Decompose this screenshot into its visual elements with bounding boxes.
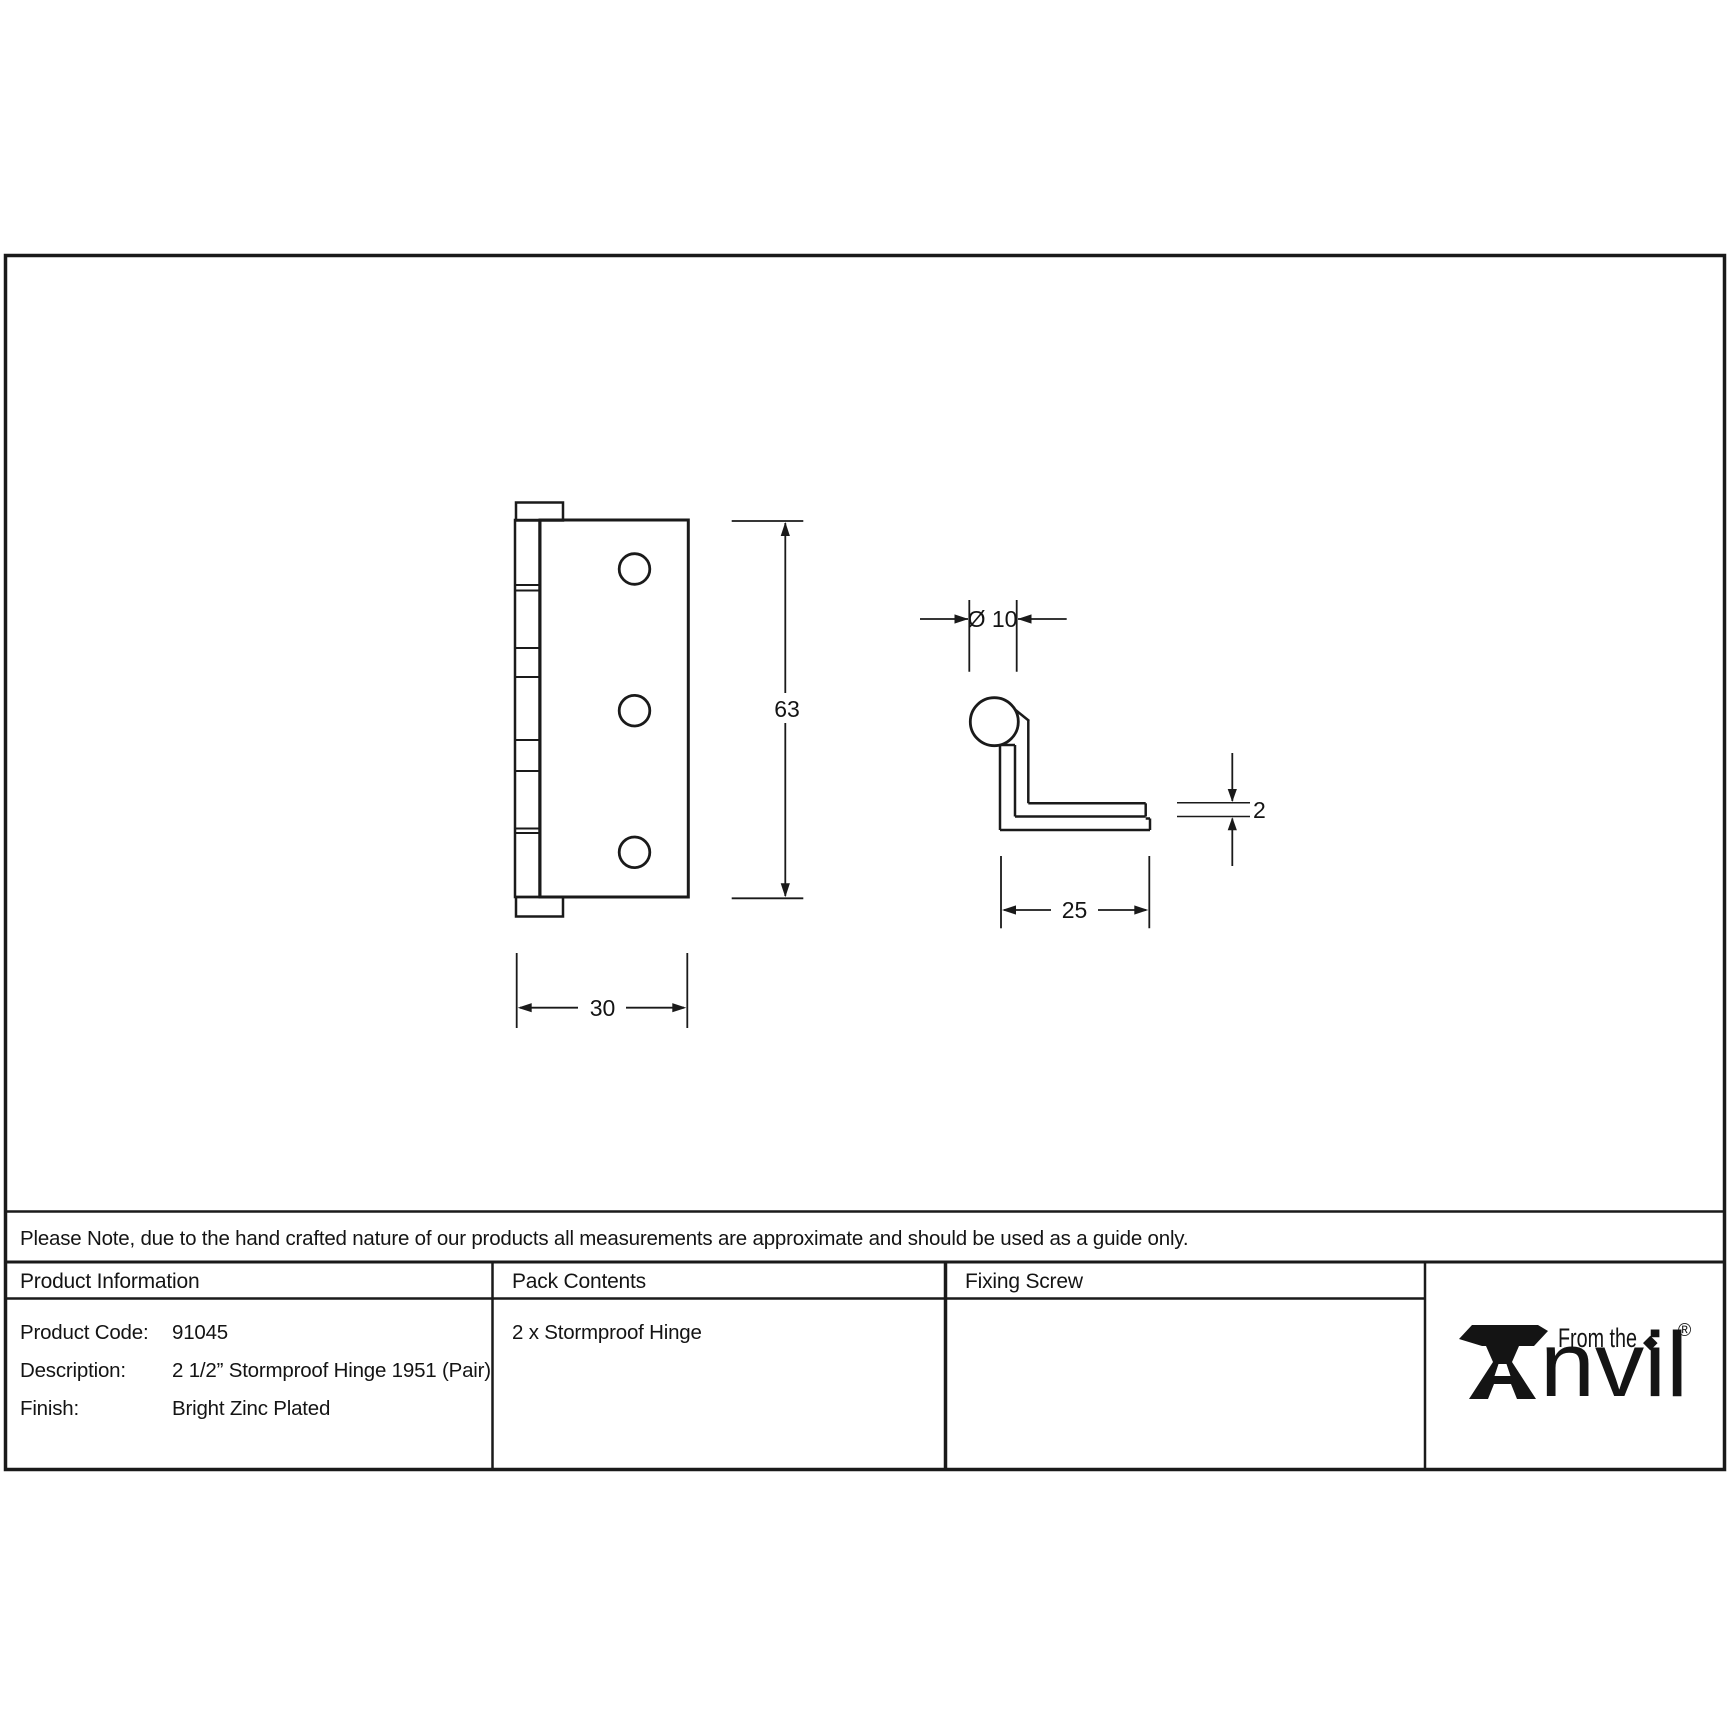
dimension-height-63: 63 xyxy=(732,521,804,898)
dimension-diameter-10: Ø 10 xyxy=(920,600,1067,672)
description-label: Description: xyxy=(20,1359,170,1383)
sheet-frame xyxy=(4,256,1725,1470)
description-value: 2 1/2” Stormproof Hinge 1951 (Pair) xyxy=(172,1359,491,1383)
product-code-value: 91045 xyxy=(172,1321,228,1345)
side-view-drawing xyxy=(970,698,1150,830)
from-the-anvil-logo: nvil From the ◆ ® xyxy=(1450,1320,1705,1410)
dimension-thickness-2: 2 xyxy=(1177,753,1266,866)
table-row: Finish: Bright Zinc Plated xyxy=(0,1397,492,1423)
measurement-note: Please Note, due to the hand crafted nat… xyxy=(20,1227,1620,1251)
registered-trademark-icon: ® xyxy=(1678,1320,1691,1340)
dim-label-30: 30 xyxy=(590,995,616,1021)
product-drawing-sheet: 63 30 xyxy=(0,0,1730,1730)
header-pack-contents: Pack Contents xyxy=(512,1270,646,1294)
front-view-drawing xyxy=(515,503,688,917)
knuckle-divisions xyxy=(515,585,540,833)
finish-value: Bright Zinc Plated xyxy=(172,1397,330,1421)
product-code-label: Product Code: xyxy=(20,1321,170,1345)
dim-label-63: 63 xyxy=(774,696,800,722)
dimension-width-30: 30 xyxy=(517,953,688,1028)
screw-holes xyxy=(619,554,650,868)
header-product-information: Product Information xyxy=(20,1270,199,1294)
finish-label: Finish: xyxy=(20,1397,170,1421)
dimension-leaf-width-25: 25 xyxy=(1001,856,1149,928)
dim-label-thickness-2: 2 xyxy=(1253,797,1266,823)
anvil-icon xyxy=(1459,1325,1548,1399)
header-fixing-screw: Fixing Screw xyxy=(965,1270,1083,1294)
dim-label-25: 25 xyxy=(1062,897,1088,923)
knuckle-circle xyxy=(970,698,1018,746)
logo-from-the-text: From the xyxy=(1558,1323,1637,1353)
dim-label-diameter-10: Ø 10 xyxy=(968,606,1018,632)
logo-diamond-icon: ◆ xyxy=(1643,1332,1658,1353)
technical-drawing-canvas: 63 30 xyxy=(0,0,1730,1730)
table-row: Product Code: 91045 xyxy=(0,1321,492,1347)
table-row: Description: 2 1/2” Stormproof Hinge 195… xyxy=(0,1359,492,1385)
pack-contents-value: 2 x Stormproof Hinge xyxy=(512,1321,702,1345)
